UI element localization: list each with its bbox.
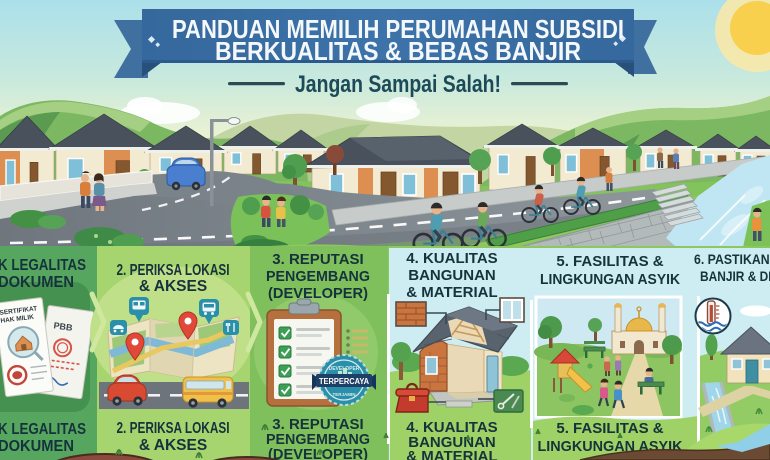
svg-text:5. FASILITAS &: 5. FASILITAS & [556,253,663,270]
svg-text:& AKSES: & AKSES [139,278,207,295]
svg-text:DOKUMEN: DOKUMEN [0,274,74,291]
svg-text:K LEGALITAS: K LEGALITAS [0,257,86,274]
svg-text:3. REPUTASI: 3. REPUTASI [272,251,363,268]
svg-text:BERKUALITAS & BEBAS BANJIR: BERKUALITAS & BEBAS BANJIR [215,36,581,66]
svg-text:(DEVELOPER): (DEVELOPER) [268,285,368,302]
svg-text:& MATERIAL: & MATERIAL [406,284,497,301]
svg-text:TERJAMIN: TERJAMIN [332,392,355,397]
svg-text:TERPERCAYA: TERPERCAYA [319,377,369,386]
svg-text:BANJIR & DRAINASE: BANJIR & DRAINASE [700,268,770,284]
svg-text:& MATERIAL: & MATERIAL [406,448,497,460]
svg-text:LINGKUNGAN ASYIK: LINGKUNGAN ASYIK [540,271,680,288]
svg-text:6. PASTIKAN BEBAS: 6. PASTIKAN BEBAS [694,251,770,267]
svg-text:PENGEMBANG: PENGEMBANG [266,268,370,285]
svg-text:4. KUALITAS: 4. KUALITAS [406,250,497,267]
svg-text:5. FASILITAS &: 5. FASILITAS & [556,420,663,437]
svg-text:2. PERIKSA LOKASI: 2. PERIKSA LOKASI [117,262,230,279]
svg-text:DOKUMEN: DOKUMEN [0,438,74,455]
svg-text:K LEGALITAS: K LEGALITAS [0,421,86,438]
svg-text:2. PERIKSA LOKASI: 2. PERIKSA LOKASI [117,420,230,437]
svg-text:BANGUNAN: BANGUNAN [408,267,496,284]
svg-text:& AKSES: & AKSES [139,437,207,454]
svg-text:Jangan Sampai Salah!: Jangan Sampai Salah! [295,71,501,98]
